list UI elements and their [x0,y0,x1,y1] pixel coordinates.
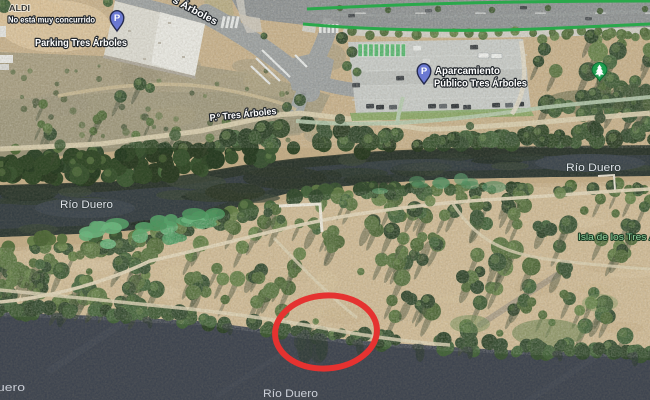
svg-text:Público Tres Árboles: Público Tres Árboles [434,77,527,90]
svg-text:Aparcamiento: Aparcamiento [435,65,500,77]
svg-text:No está muy concurrido: No está muy concurrido [8,16,95,25]
svg-text:P: P [421,66,428,77]
svg-text:uero: uero [0,382,25,394]
svg-text:Isla de los Tres Á: Isla de los Tres Á [578,232,650,243]
svg-text:ALDI: ALDI [9,3,30,13]
svg-text:Río Duero: Río Duero [566,162,621,174]
svg-text:P: P [114,13,121,24]
svg-text:Parking Tres Árboles: Parking Tres Árboles [35,36,127,49]
svg-text:Río Duero: Río Duero [60,199,113,211]
svg-text:Río Duero: Río Duero [263,388,318,400]
